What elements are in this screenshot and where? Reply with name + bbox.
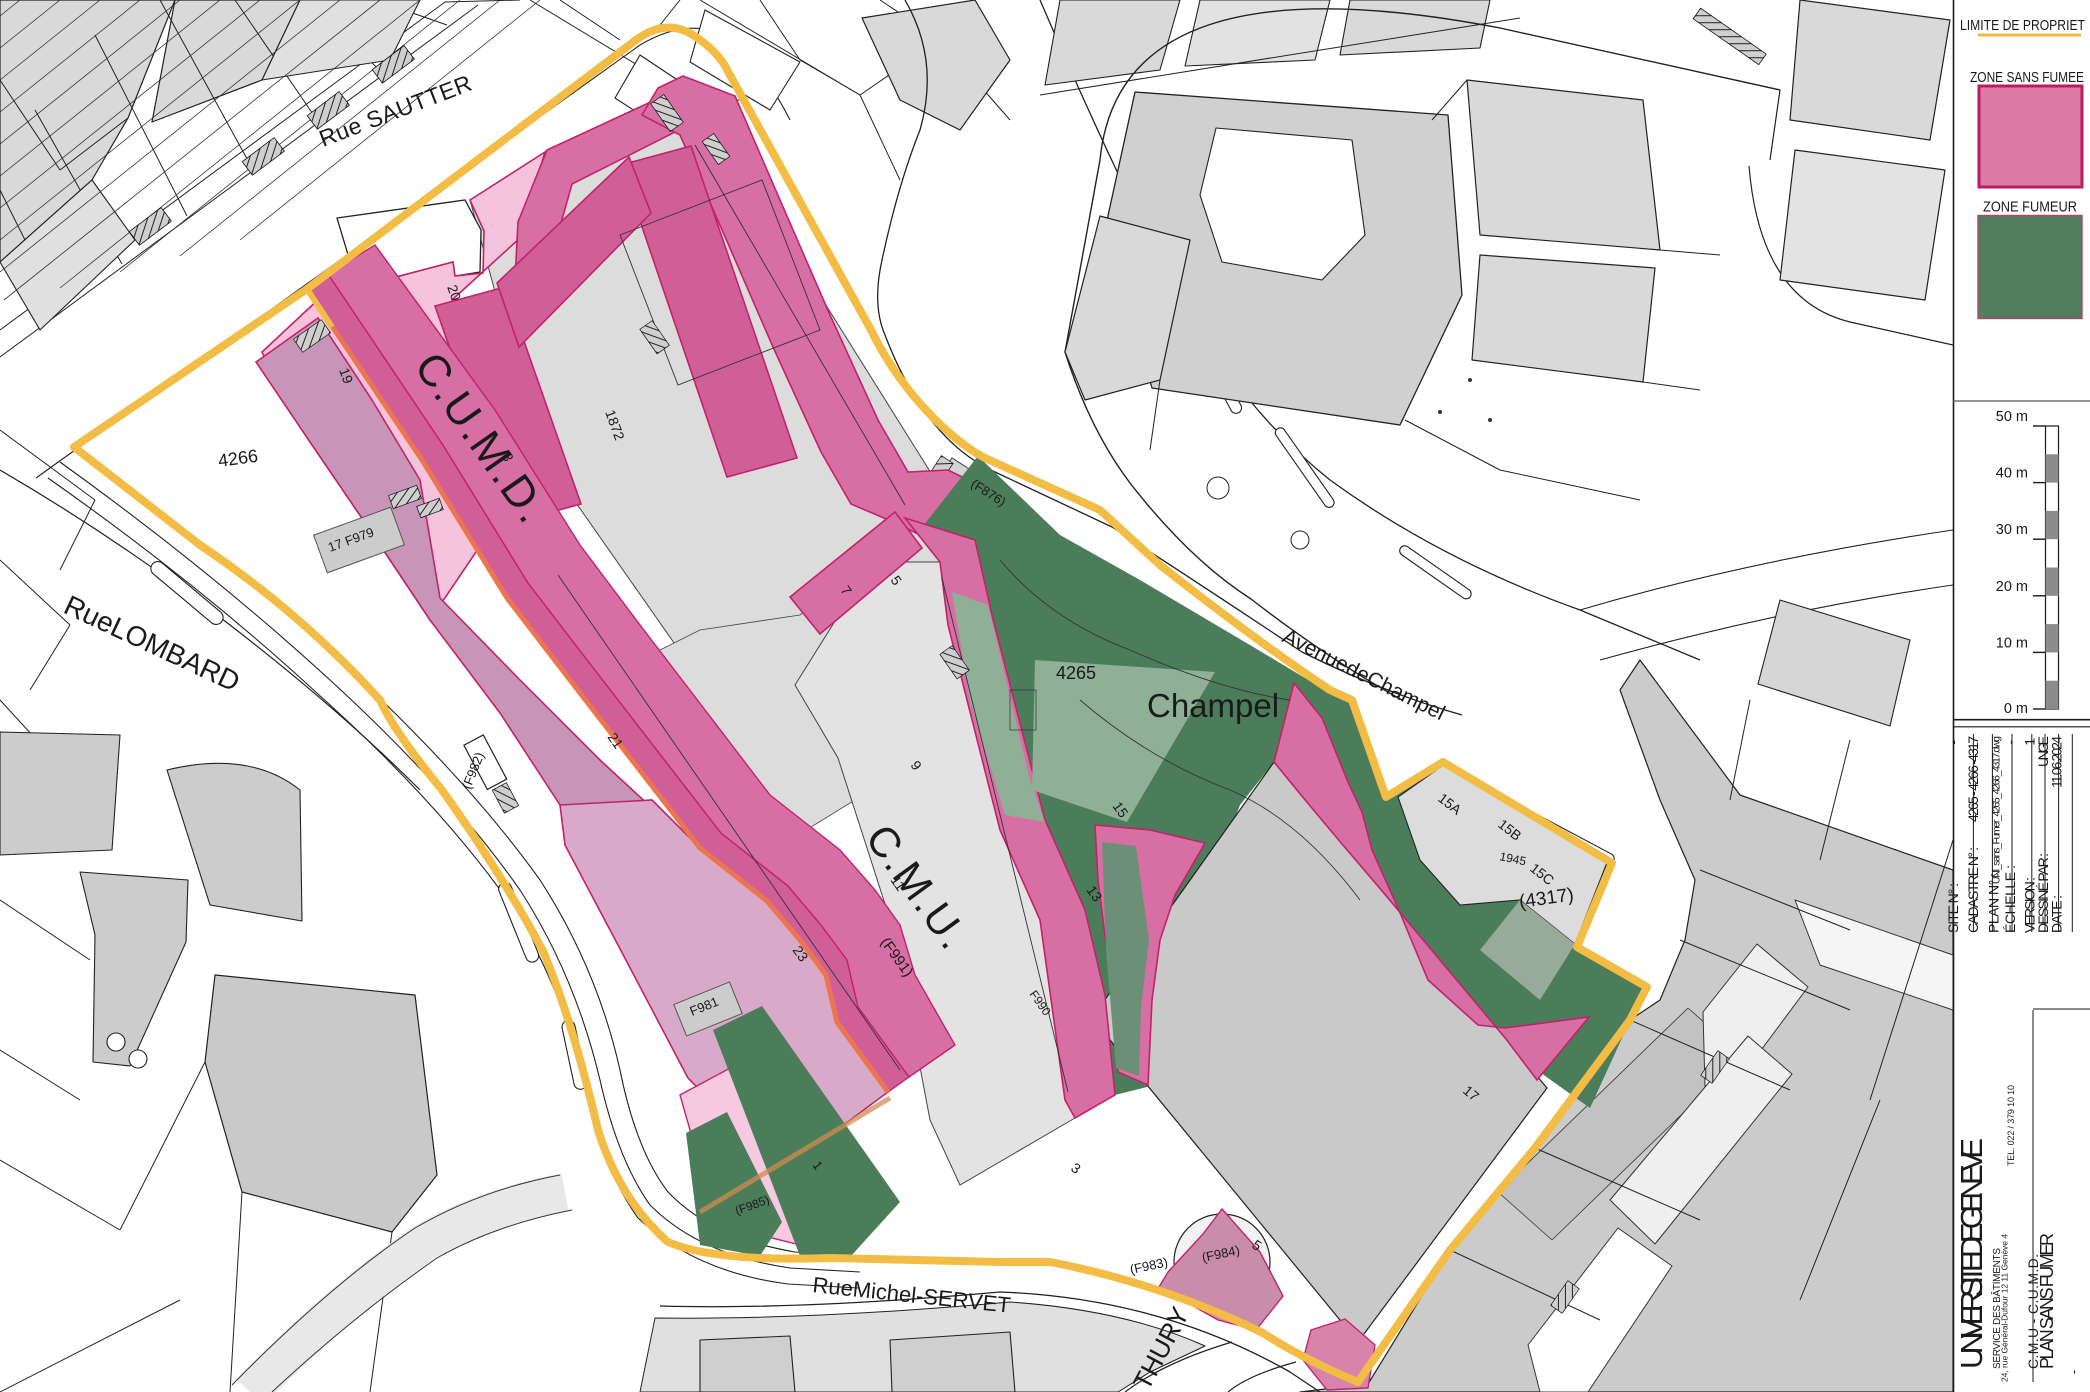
- svg-text:ZONE SANS FUMEE: ZONE SANS FUMEE: [1970, 70, 2084, 86]
- svg-text:-: -: [2002, 740, 2018, 745]
- svg-text:24, rue Général-Dufour 12 11: 24, rue Général-Dufour 12 11 Genève 4: [2000, 1234, 2010, 1382]
- svg-text:ÉCHELLE :: ÉCHELLE :: [2002, 865, 2018, 933]
- svg-text:Champel: Champel: [1147, 687, 1279, 724]
- svg-text:PLAN SANS FUMER: PLAN SANS FUMER: [2037, 1233, 2057, 1369]
- svg-text:0 m: 0 m: [2004, 701, 2028, 717]
- svg-text:10 m: 10 m: [1996, 635, 2028, 651]
- svg-text:50 m: 50 m: [1996, 409, 2028, 425]
- svg-text:-: -: [1945, 740, 1961, 745]
- svg-text:-: -: [2066, 1370, 2081, 1374]
- svg-text:20 m: 20 m: [1996, 579, 2028, 595]
- svg-text:30 m: 30 m: [1996, 522, 2028, 538]
- svg-text:40 m: 40 m: [1996, 466, 2028, 482]
- svg-text:CADASTRE N° :: CADASTRE N° :: [1965, 847, 1981, 933]
- svg-text:SITE N° :: SITE N° :: [1945, 883, 1961, 933]
- svg-text:ZONE FUMEUR: ZONE FUMEUR: [1983, 200, 2077, 216]
- svg-text:UNI_sans_Fumer_4265_4266_4317.: UNI_sans_Fumer_4265_4266_4317.dwg: [1991, 736, 2003, 884]
- svg-text:11.06.2024: 11.06.2024: [2049, 736, 2065, 788]
- svg-text:UNIVERSITE DE GENEVE: UNIVERSITE DE GENEVE: [1954, 1138, 1989, 1369]
- svg-text:LIMITE DE PROPRIET: LIMITE DE PROPRIET: [1960, 18, 2085, 34]
- svg-text:TEL. 022 / 379 10 10: TEL. 022 / 379 10 10: [2006, 1085, 2016, 1166]
- svg-text:4265: 4265: [1056, 663, 1096, 683]
- svg-text:DATE :: DATE :: [2049, 895, 2065, 933]
- svg-text:4265 - 4266 -4317: 4265 - 4266 -4317: [1965, 736, 1981, 822]
